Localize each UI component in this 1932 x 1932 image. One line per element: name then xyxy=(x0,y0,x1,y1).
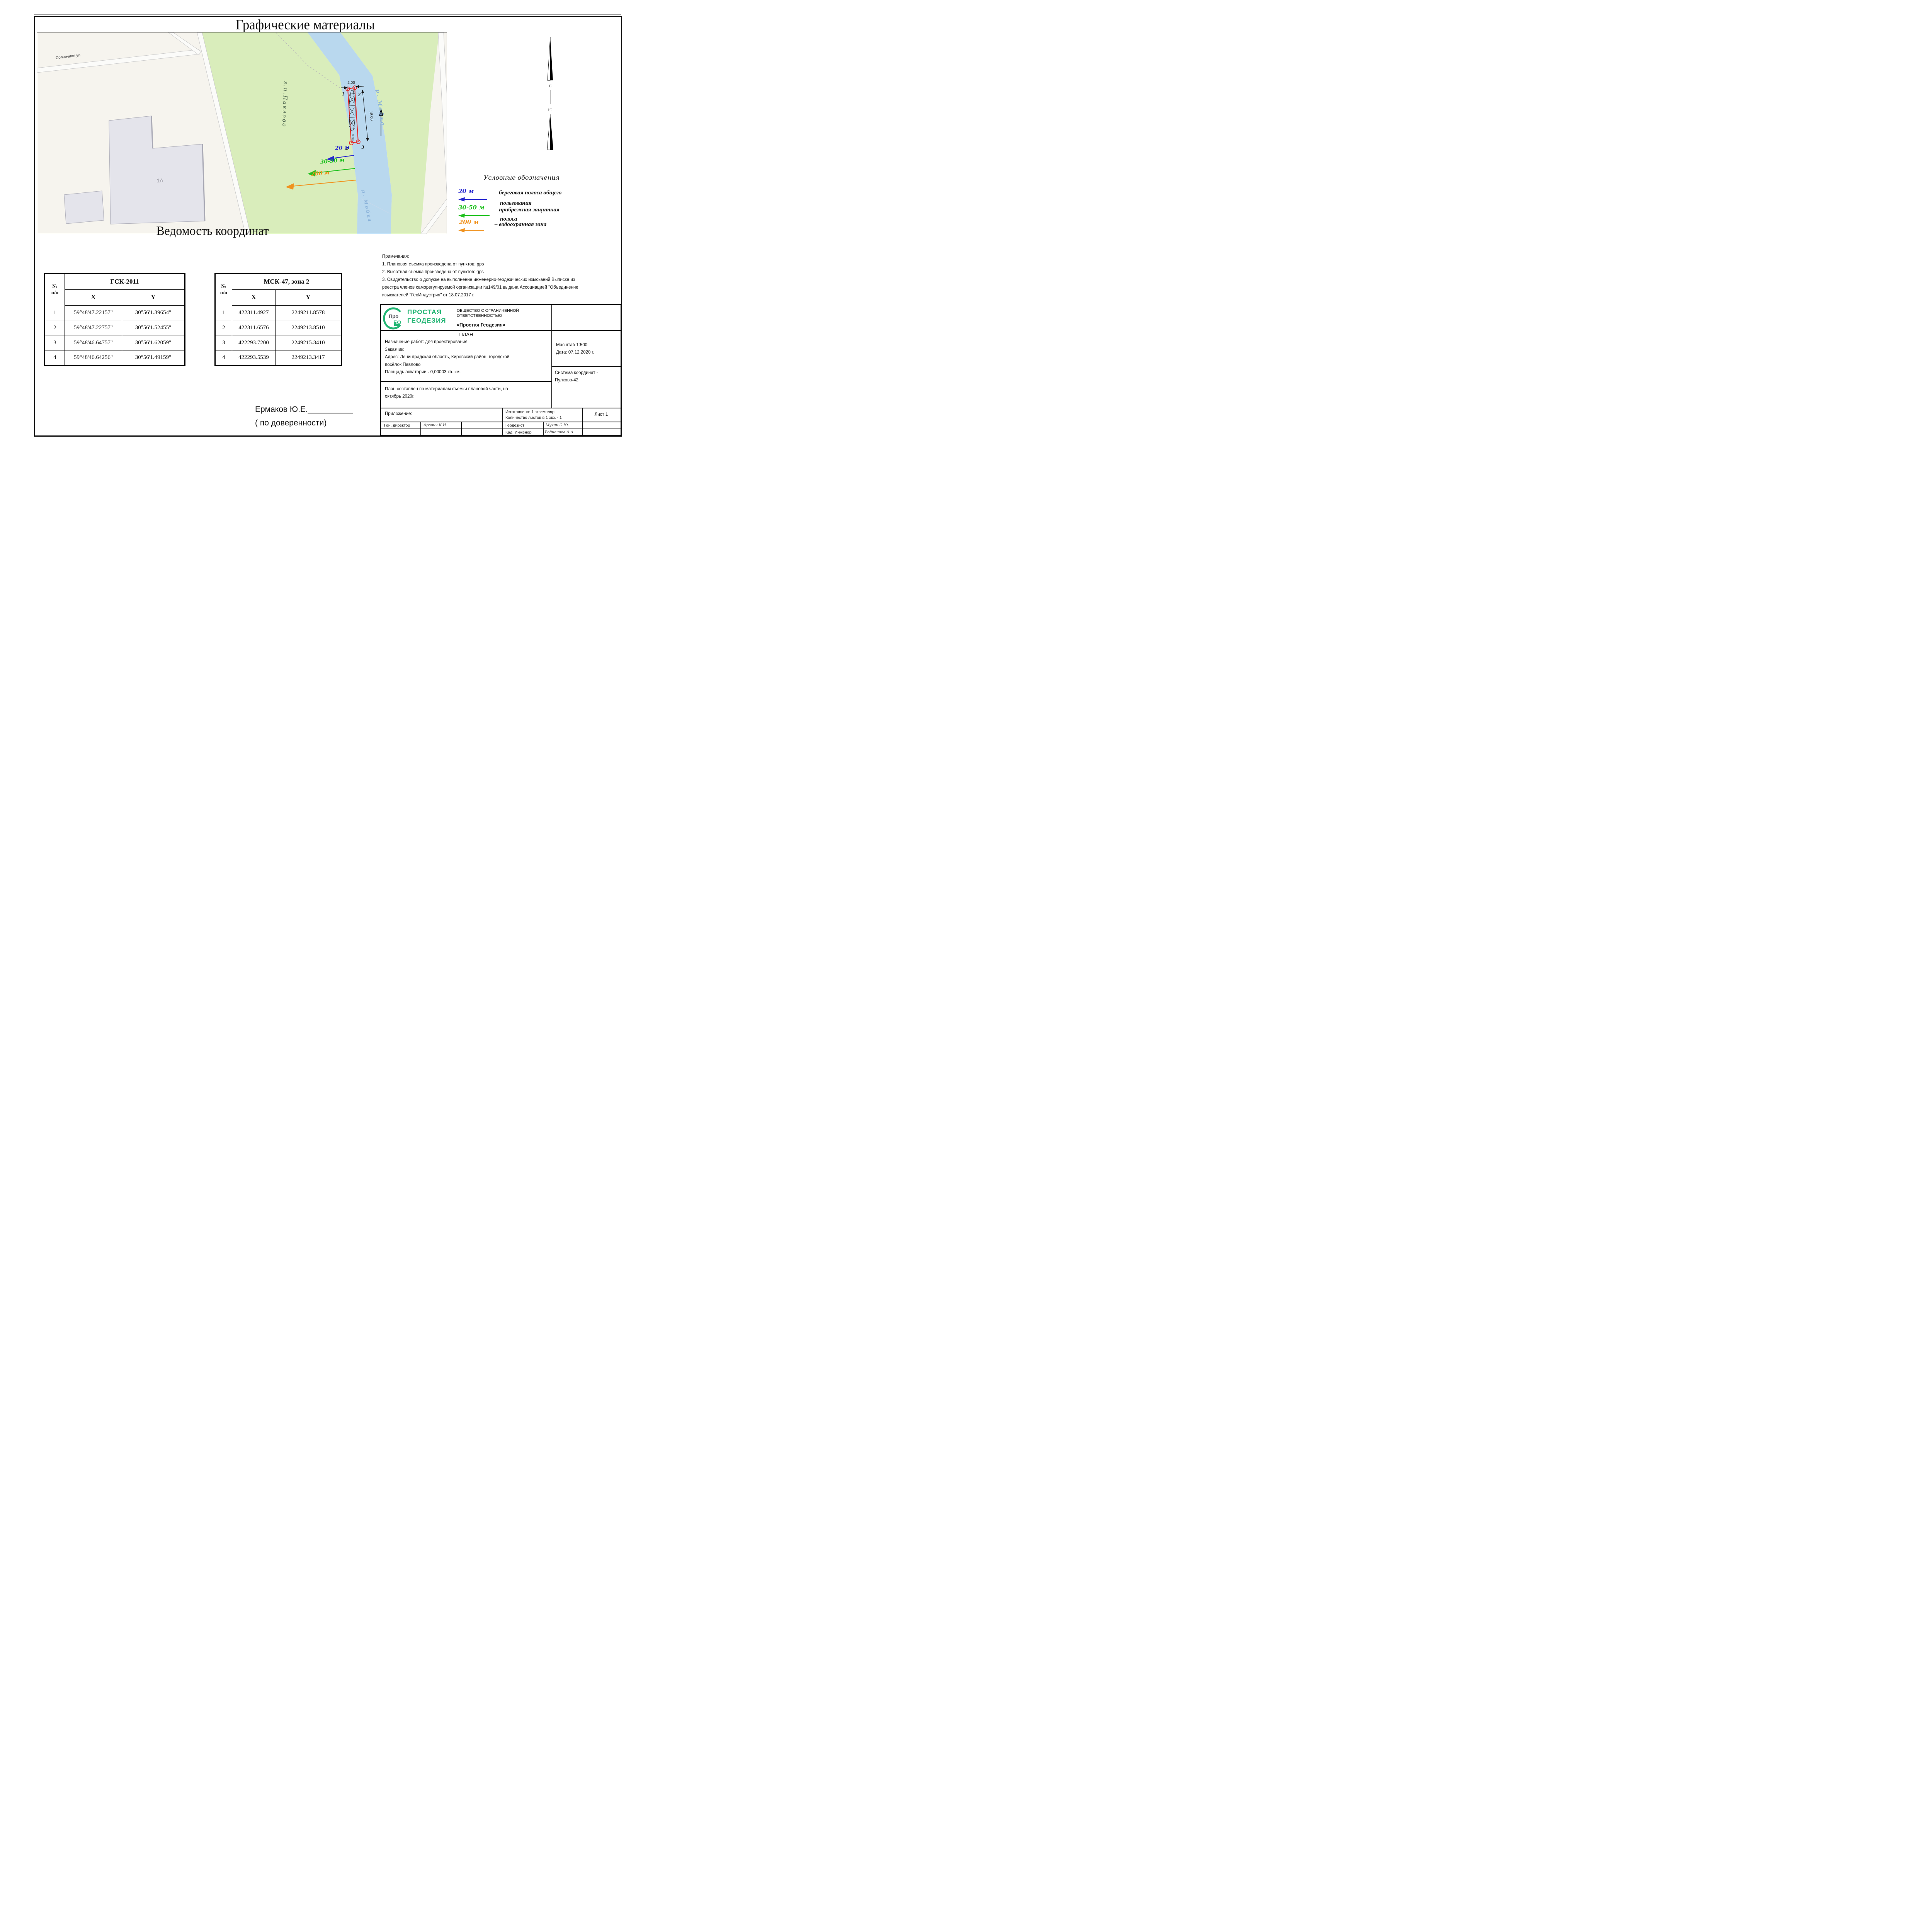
map-panel: 1А понтон 1 2 3 4 xyxy=(37,32,447,234)
legend-desc-20m-line1: – береговая полоса общего xyxy=(495,190,562,196)
stamp-hline-right xyxy=(551,366,621,367)
ermakov-signature: Ермаков Ю.Е.__________ xyxy=(255,405,353,414)
title-block: Про ЕО ПРОСТАЯ ГЕОДЕЗИЯ ОБЩЕСТВО С ОГРАН… xyxy=(380,304,621,435)
legend-arrow-20m xyxy=(458,197,488,202)
table-row: 4422293.55392249213.3417 xyxy=(215,350,342,366)
notes-line: 3. Свидетельство о допуске на выполнение… xyxy=(382,276,618,284)
page-title: Графические материалы xyxy=(196,18,414,32)
stamp-hline-left xyxy=(381,381,551,382)
coord-system-1: Система координат - xyxy=(555,371,598,376)
stamp-hline-1 xyxy=(381,330,621,331)
stamp-vline-main xyxy=(551,305,552,408)
notes-line: изыскателей "ГеоИндустрия" от 18.07.2017… xyxy=(382,291,618,299)
notes-block: Примечания: 1. Плановая съемка произведе… xyxy=(382,253,618,299)
stamp-hline-3 xyxy=(381,422,621,422)
north-arrow: С Ю xyxy=(543,36,558,151)
svg-text:2: 2 xyxy=(358,92,361,97)
plan-title: ПЛАН xyxy=(381,332,551,338)
msk-title: МСК-47, зона 2 xyxy=(232,274,342,290)
plan-customer: Заказчик: xyxy=(385,347,404,352)
legend-title: Условные обозначения xyxy=(481,174,562,181)
stamp-vline-b3 xyxy=(502,408,503,435)
table-row: 459°48'46.64256"30°56'1.49159" xyxy=(45,350,185,366)
frame-shadow-line xyxy=(34,14,621,15)
gsk-title: ГСК-2011 xyxy=(65,274,185,290)
building-1a-label: 1А xyxy=(156,177,163,184)
stamp-vline-b4 xyxy=(543,422,544,435)
signature-mukhin: Мухин С.Ю. xyxy=(546,423,569,428)
role-gen-director: Ген. директор xyxy=(384,423,410,428)
plan-address-1: Адрес: Ленинградская область, Кировский … xyxy=(385,355,509,360)
svg-text:1: 1 xyxy=(342,91,345,97)
small-building-shape xyxy=(64,191,104,224)
svg-text:3: 3 xyxy=(361,144,364,150)
legend-arrow-200m xyxy=(458,228,485,233)
table-row: 359°48'46.64757"30°56'1.62059" xyxy=(45,335,185,350)
gsk-col-x: X xyxy=(65,290,122,305)
attachment-label: Приложение: xyxy=(385,412,412,417)
coords-heading: Ведомость координат xyxy=(131,225,294,238)
legend-desc-20m-line2: пользования xyxy=(500,201,532,206)
legend-label-20m: 20 м xyxy=(458,188,474,195)
svg-text:Про: Про xyxy=(389,313,398,319)
compass-north-label: С xyxy=(549,84,551,88)
gsk-col-y: Y xyxy=(122,290,185,305)
signature-arovich: Арович К.И. xyxy=(423,423,447,428)
legend-label-200m: 200 м xyxy=(459,219,479,226)
ooo-line1: ОБЩЕСТВО С ОГРАНИЧЕННОЙ xyxy=(457,308,519,313)
plan-sheet: Графические материалы 1А xyxy=(0,0,639,452)
logo-word-2: ГЕОДЕЗИЯ xyxy=(407,317,446,324)
pontoon-label: понтон xyxy=(352,134,354,141)
map-graphics: 1А понтон 1 2 3 4 xyxy=(37,32,447,234)
produced-line1: Изготовлено: 1 экземпляр xyxy=(505,410,554,414)
legend-arrow-30-50m xyxy=(458,213,490,218)
role-geodesist: Геодезист xyxy=(505,423,524,428)
role-cad-engineer: Кад. Инженер xyxy=(505,430,532,435)
stamp-hline-2 xyxy=(381,408,621,408)
made-line2: октябрь 2020г. xyxy=(385,394,415,399)
msk-col-y: Y xyxy=(276,290,342,305)
gsk-col-no: №п/п xyxy=(45,274,65,305)
signature-rodionova: Родионова А.А. xyxy=(545,430,575,435)
date-value: Дата: 07.12.2020 г. xyxy=(556,350,594,355)
north-needle-left xyxy=(548,37,550,80)
gsk-table: №п/п ГСК-2011 X Y 159°48'47.22157"30°56'… xyxy=(44,273,185,366)
settlement-label: г.п.Павлово xyxy=(281,81,288,128)
north-needle-right xyxy=(550,37,553,80)
stamp-vline-b5 xyxy=(582,408,583,435)
ermakov-signature-note: ( по доверенности) xyxy=(255,418,327,428)
svg-text:ЕО: ЕО xyxy=(393,319,401,325)
plan-purpose: Назначение работ: для проектирования xyxy=(385,340,468,345)
logo-word-1: ПРОСТАЯ xyxy=(407,309,442,315)
ooo-line2: ОТВЕТСТВЕННОСТЬЮ xyxy=(457,313,502,318)
msk-col-x: X xyxy=(232,290,276,305)
notes-line: 2. Высотная съемка произведена от пункто… xyxy=(382,268,618,276)
table-row: 259°48'47.22757"30°56'1.52455" xyxy=(45,320,185,335)
notes-line: реестра членов саморегулируемой организа… xyxy=(382,284,618,291)
plan-address-2: посёлок Павлово xyxy=(385,362,420,367)
south-needle-right xyxy=(550,114,553,150)
table-row: 2422311.65762249213.8510 xyxy=(215,320,342,335)
notes-title: Примечания: xyxy=(382,253,618,260)
notes-line: 1. Плановая съемка произведена от пункто… xyxy=(382,260,618,268)
made-line1: План составлен по материалам съемки план… xyxy=(385,387,508,392)
plan-area: Площадь акватории - 0,00003 кв. км. xyxy=(385,370,461,375)
compass-south-label: Ю xyxy=(548,108,552,112)
stamp-vline-b1 xyxy=(420,422,421,435)
scale-value: Масштаб 1:500 xyxy=(556,343,587,348)
legend-label-30-50m: 30-50 м xyxy=(458,204,484,211)
msk-col-no: №п/п xyxy=(215,274,232,305)
sheet-number: Лист 1 xyxy=(582,412,621,417)
south-needle-left xyxy=(547,114,550,150)
table-row: 3422293.72002249215.3410 xyxy=(215,335,342,350)
company-logo-icon: Про ЕО xyxy=(383,306,406,330)
legend-desc-200m: – водоохранная зона xyxy=(495,222,546,228)
msk-table: №п/п МСК-47, зона 2 X Y 1422311.49272249… xyxy=(214,273,342,366)
dim-2m: 2.00 xyxy=(347,81,355,85)
table-row: 1422311.49272249211.8578 xyxy=(215,305,342,320)
legend-desc-30-50m-line1: – прибрежная защитная xyxy=(495,207,560,213)
stamp-vline-b2 xyxy=(461,422,462,435)
produced-line2: Количество листов в 1 экз. - 1 xyxy=(505,415,562,420)
company-name: «Простая Геодезия» xyxy=(457,322,505,328)
table-row: 159°48'47.22157"30°56'1.39654" xyxy=(45,305,185,320)
coord-system-2: Пулково-42 xyxy=(555,378,578,383)
stamp-hline-4 xyxy=(381,429,621,429)
